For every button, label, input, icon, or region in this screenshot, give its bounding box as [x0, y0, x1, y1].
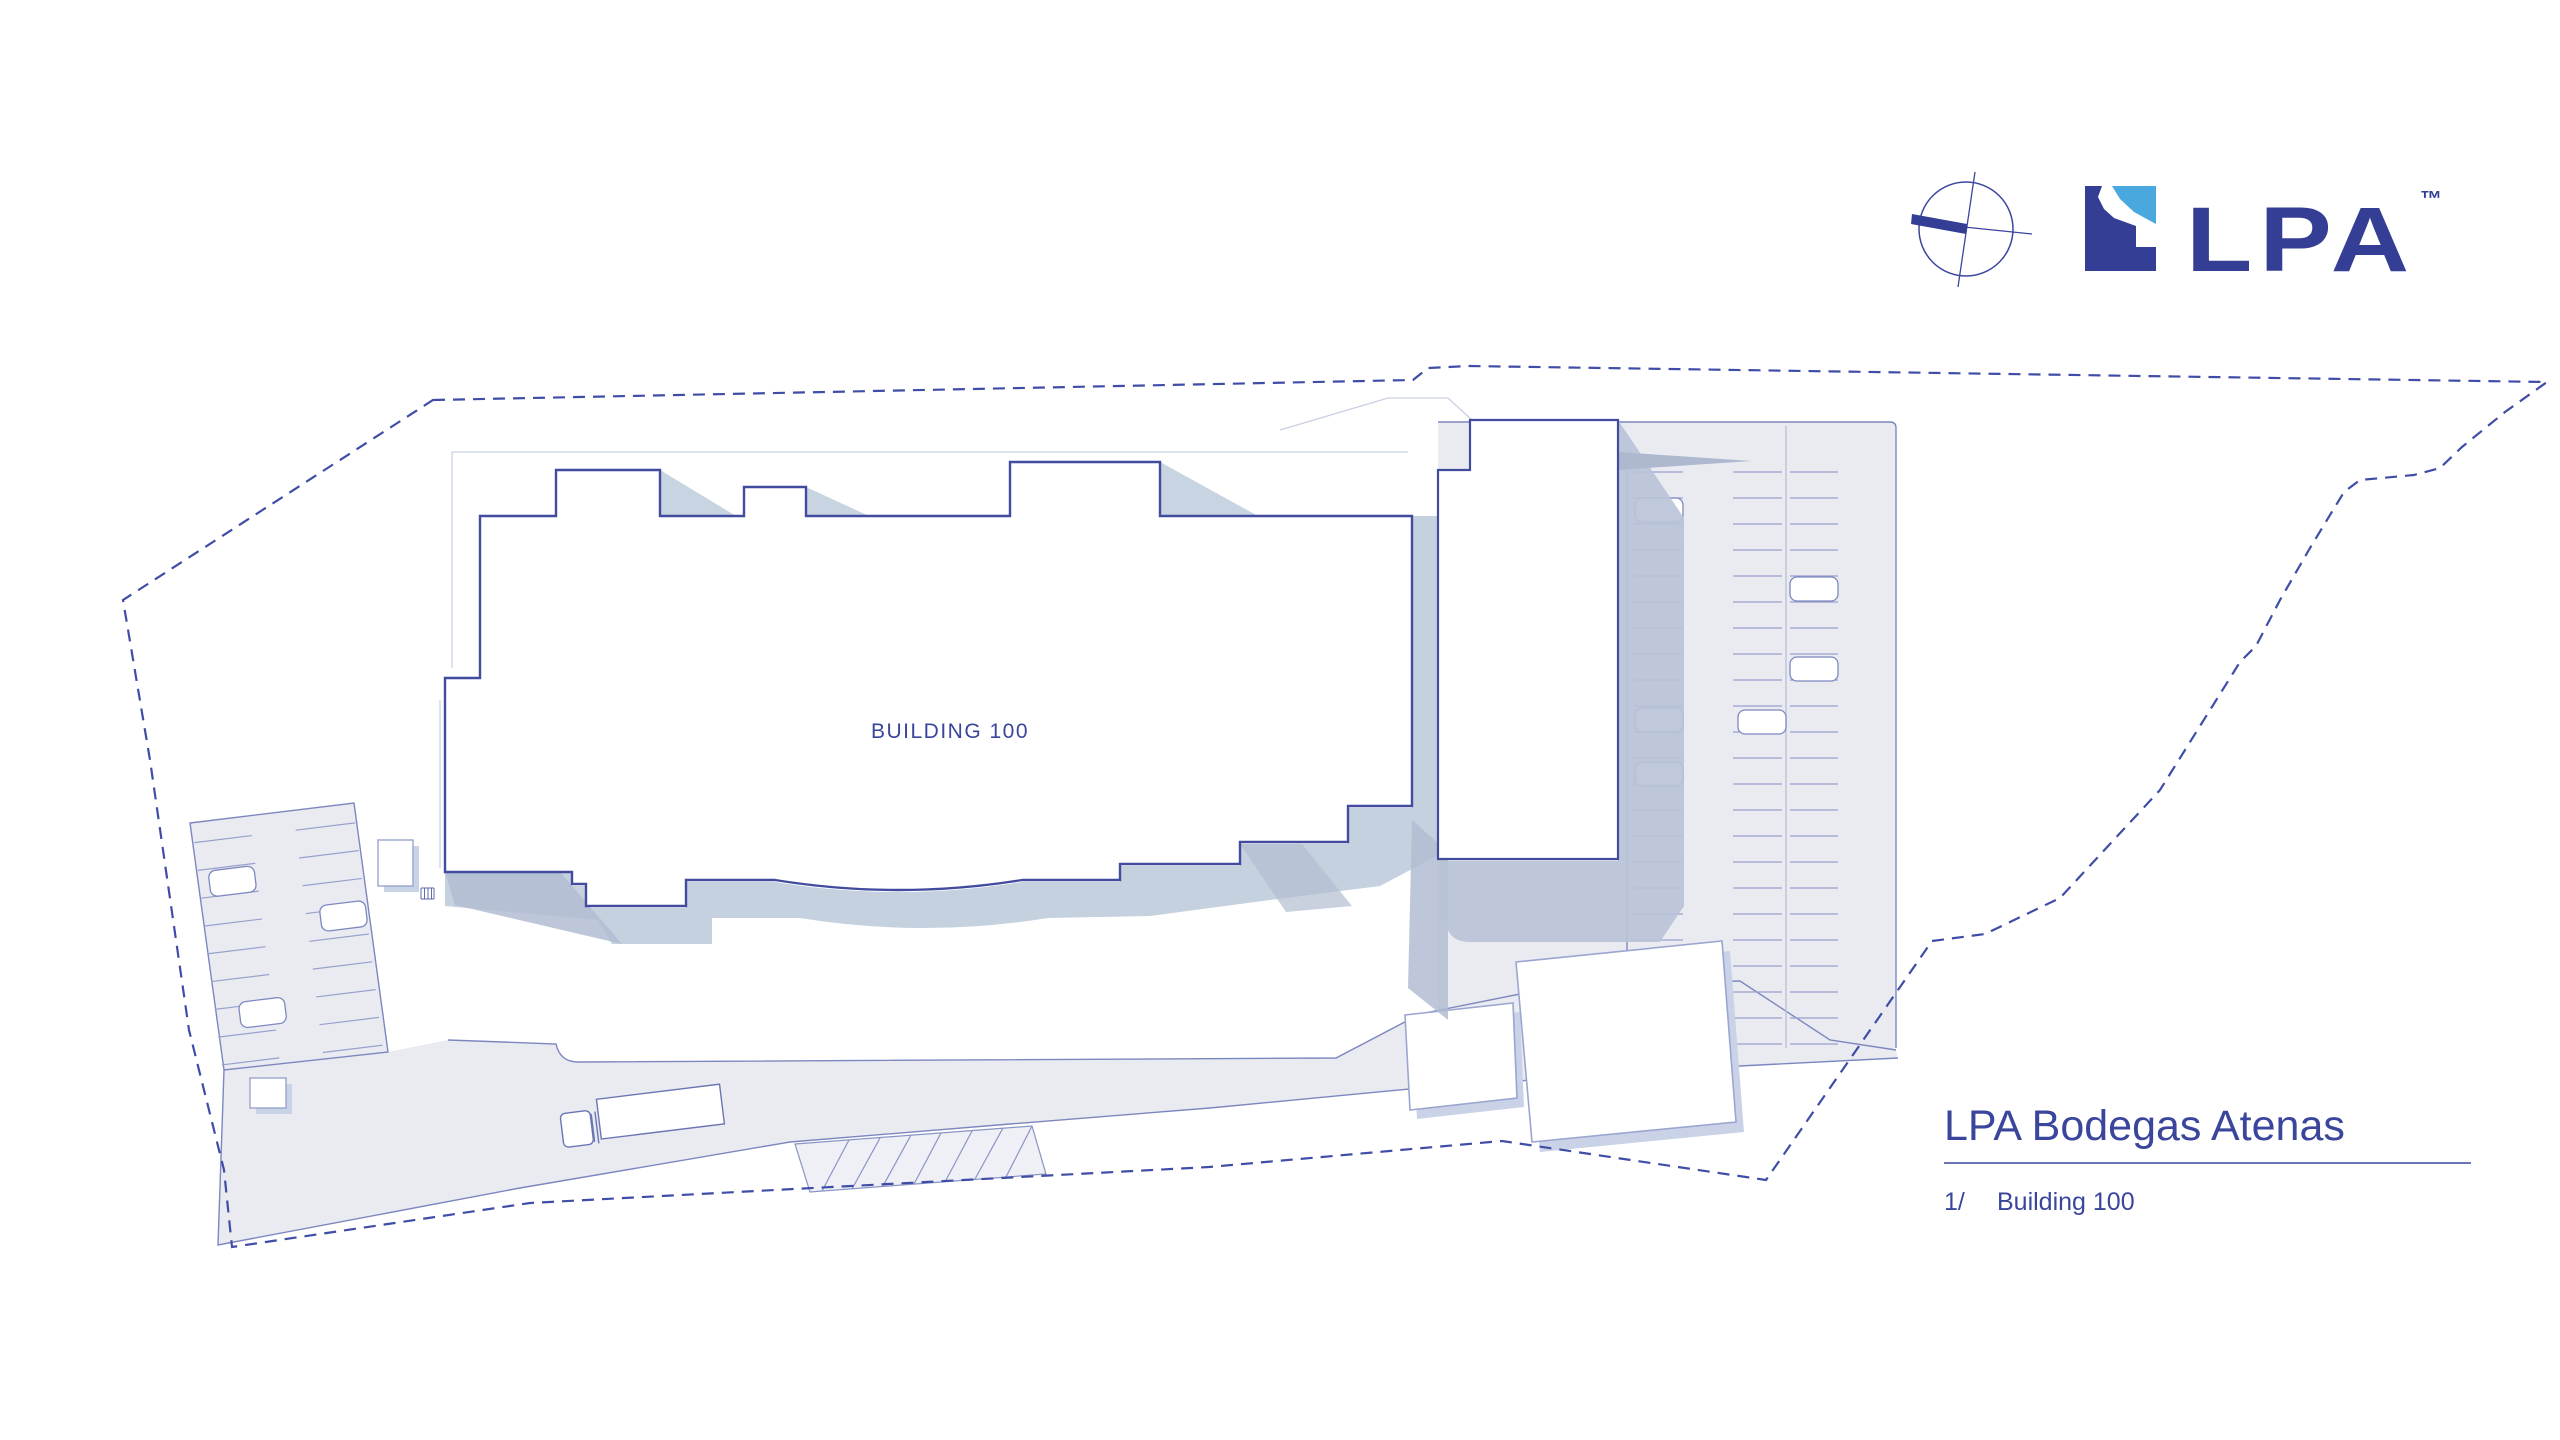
lpa-logo: LPA ™	[2085, 186, 2442, 291]
parked-car-icon	[238, 997, 287, 1028]
annex-building-outline	[1438, 420, 1618, 859]
roof-shadow-triangle	[1160, 462, 1258, 516]
shed-2	[250, 1078, 292, 1114]
lpa-logo-tm: ™	[2420, 186, 2442, 211]
shed-1-body	[378, 840, 413, 886]
shed-2-body	[250, 1078, 286, 1108]
project-title: LPA Bodegas Atenas	[1944, 1102, 2345, 1150]
outbuilding-large-body	[1516, 941, 1736, 1142]
lpa-logo-text: LPA	[2186, 189, 2416, 291]
parked-car-icon	[1790, 657, 1838, 681]
roof-shadow-triangle	[806, 487, 869, 516]
main-building-group: BUILDING 100	[445, 462, 1448, 1020]
canopy-line-left	[452, 452, 462, 668]
compass-axis-horizontal	[1964, 227, 2032, 234]
site-plan-canvas: BUILDING 100 LPA ™ LPA Bodegas Atenas	[0, 0, 2560, 1440]
parked-car-icon	[208, 866, 257, 897]
sheet-number: 1/	[1944, 1188, 1965, 1216]
north-arrow-compass-icon	[1911, 172, 2032, 287]
title-block: LPA Bodegas Atenas 1/ Building 100	[1944, 1102, 2471, 1216]
truck-cab	[560, 1110, 594, 1147]
left-parking-lot	[190, 803, 388, 1070]
building-label: BUILDING 100	[871, 720, 1029, 743]
lpa-logo-mark-accent	[2112, 186, 2156, 224]
parked-car-icon	[1790, 577, 1838, 601]
site-plan-page: BUILDING 100 LPA ™ LPA Bodegas Atenas	[0, 0, 2560, 1440]
roof-shadow-triangle	[660, 470, 736, 516]
stairs-hatch-icon	[421, 888, 434, 899]
outbuilding-small	[1405, 1003, 1524, 1119]
parked-car-icon	[1738, 710, 1786, 734]
outbuilding-small-body	[1405, 1003, 1517, 1110]
shed-1	[378, 840, 419, 892]
lpa-logo-mark	[2085, 186, 2156, 271]
outbuilding-large	[1516, 941, 1744, 1152]
main-building-outline	[445, 462, 1412, 906]
sheet-name: Building 100	[1997, 1188, 2135, 1216]
parked-car-icon	[319, 900, 368, 931]
